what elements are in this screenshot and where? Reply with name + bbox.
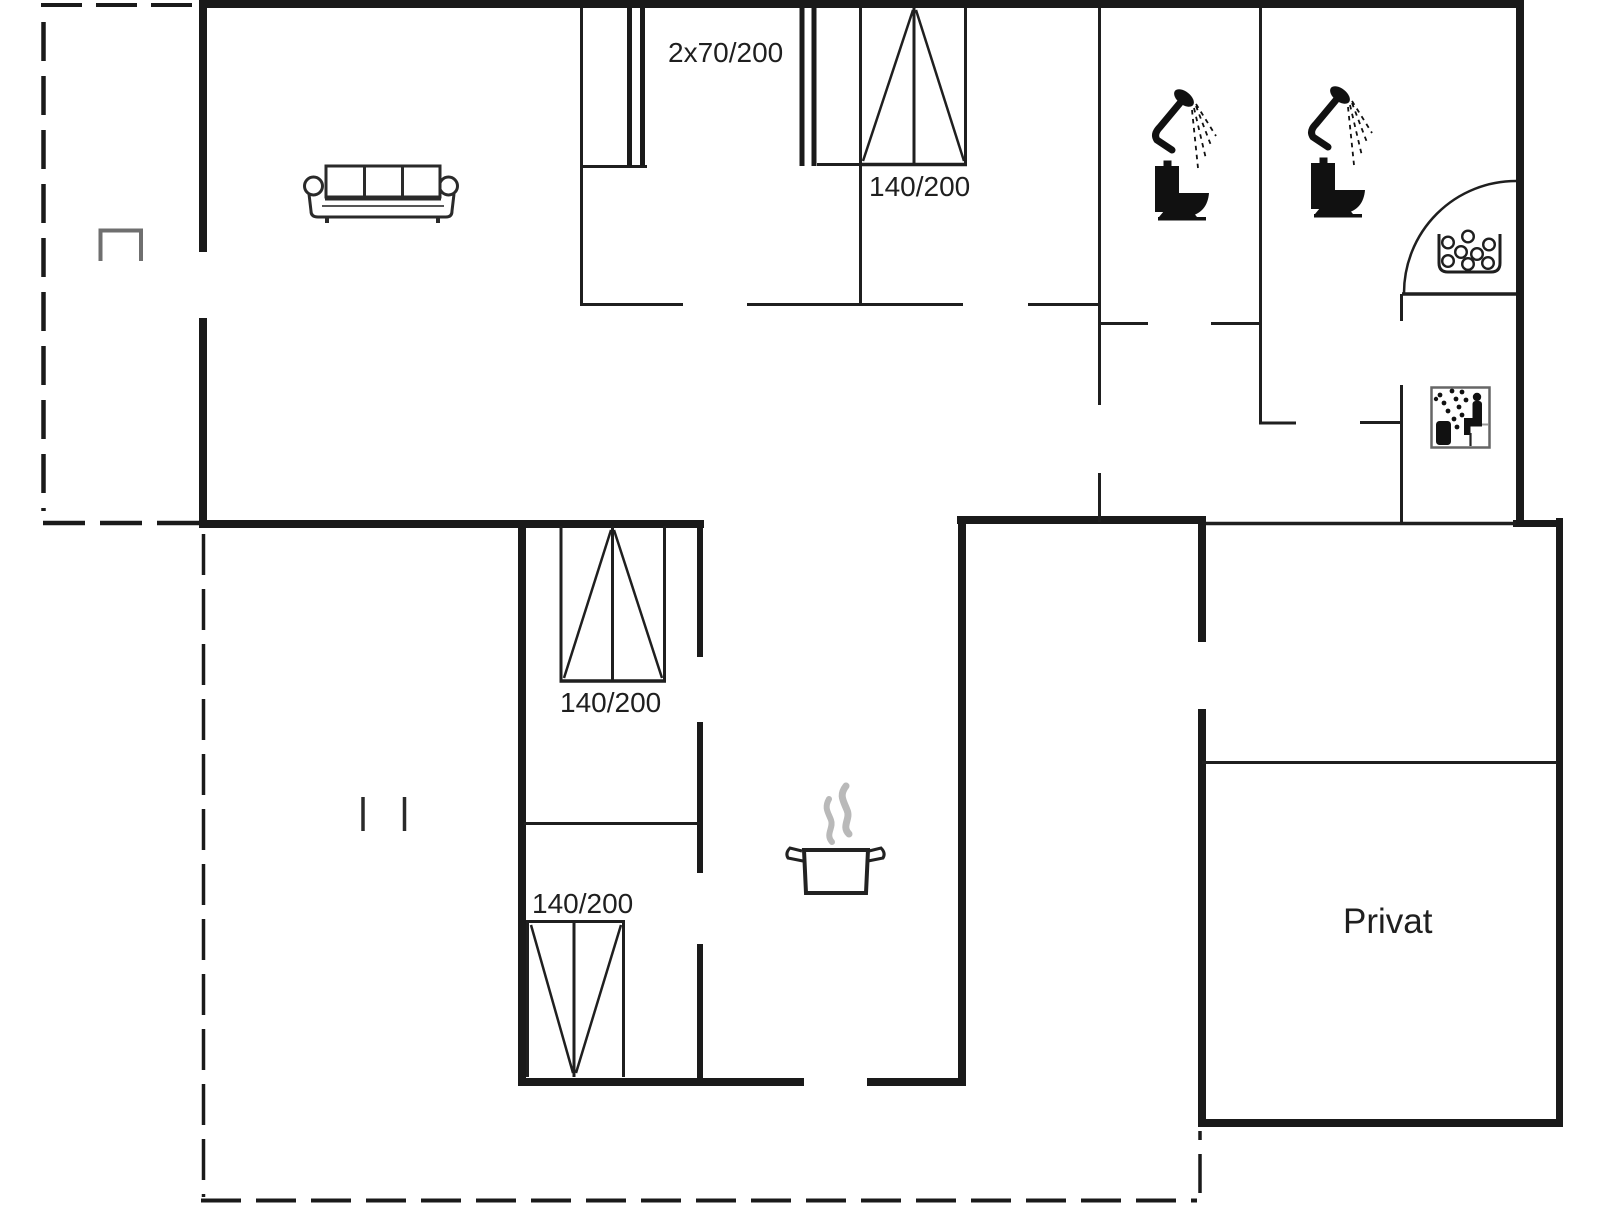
svg-text:140/200: 140/200 [869,171,970,202]
svg-text:140/200: 140/200 [532,888,633,919]
svg-text:140/200: 140/200 [560,687,661,718]
svg-text:2x70/200: 2x70/200 [668,37,783,68]
svg-text:Privat: Privat [1343,902,1433,941]
